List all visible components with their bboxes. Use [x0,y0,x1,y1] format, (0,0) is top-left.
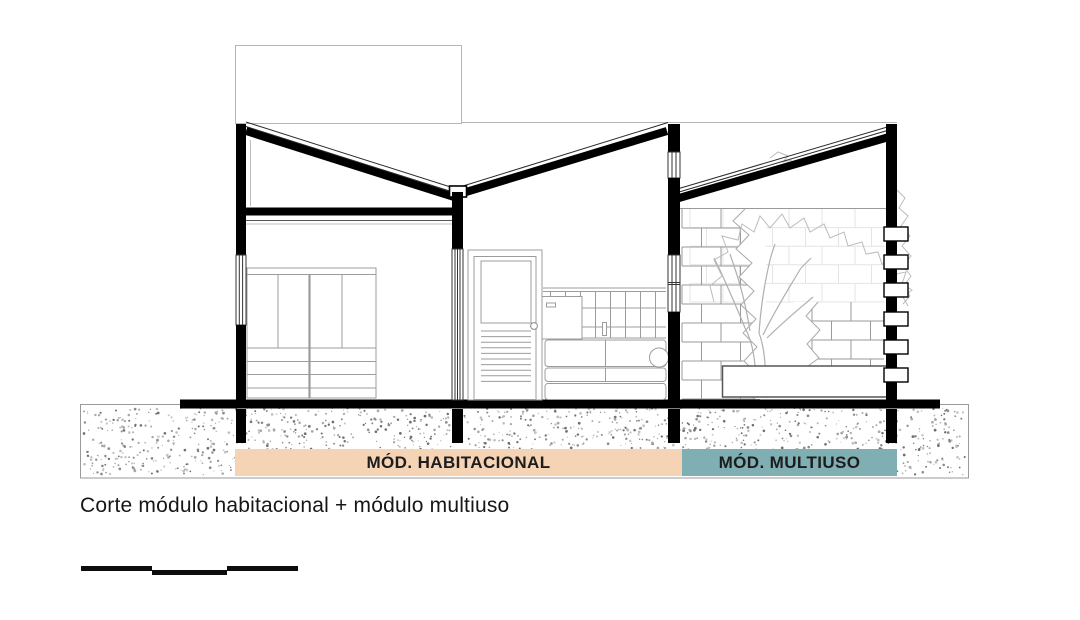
roof-beam-middle [466,131,667,192]
column-right [884,124,908,443]
roof-beam-left [246,131,457,198]
band-multiuso-label: MÓD. MULTIUSO [719,453,861,473]
block-wall-cut-right [812,302,884,366]
floor-slab [180,400,940,409]
scale-bar-segment [152,570,227,575]
louvered-door [468,250,542,400]
roof-beam-right [679,137,889,198]
scale-bar-segment [81,566,152,571]
sofa [545,340,669,400]
scale-bar-segment [227,566,298,571]
scale-bar [81,566,301,578]
band-habitacional-label: MÓD. HABITACIONAL [366,453,550,473]
band-modulo-multiuso: MÓD. MULTIUSO [682,449,897,476]
section-drawing-page: MÓD. HABITACIONAL MÓD. MULTIUSO Corte mó… [0,0,1080,620]
clerestory-outline [236,46,898,124]
kitchen [542,288,666,339]
column-left [236,124,246,443]
band-modulo-habitacional: MÓD. HABITACIONAL [235,449,682,476]
architectural-section-drawing [0,0,1080,620]
column-center-right [668,124,680,443]
planter-bench [723,366,888,397]
wardrobe [247,268,376,398]
ceiling-beam [246,208,452,216]
drawing-caption: Corte módulo habitacional + módulo multi… [80,494,509,518]
